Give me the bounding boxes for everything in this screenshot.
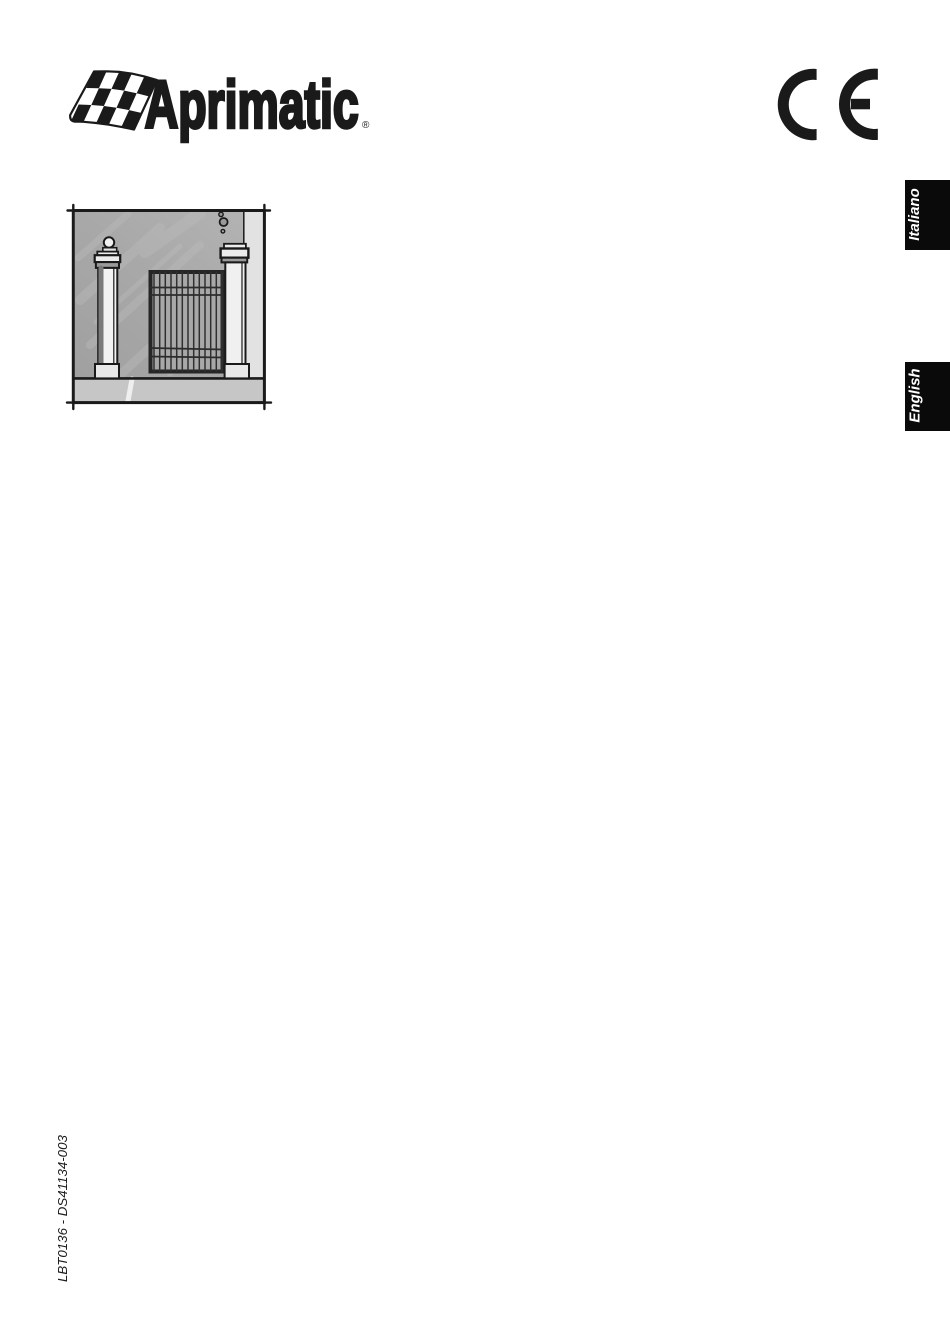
svg-text:Aprimatic: Aprimatic: [145, 68, 359, 143]
svg-text:®: ®: [362, 120, 370, 131]
